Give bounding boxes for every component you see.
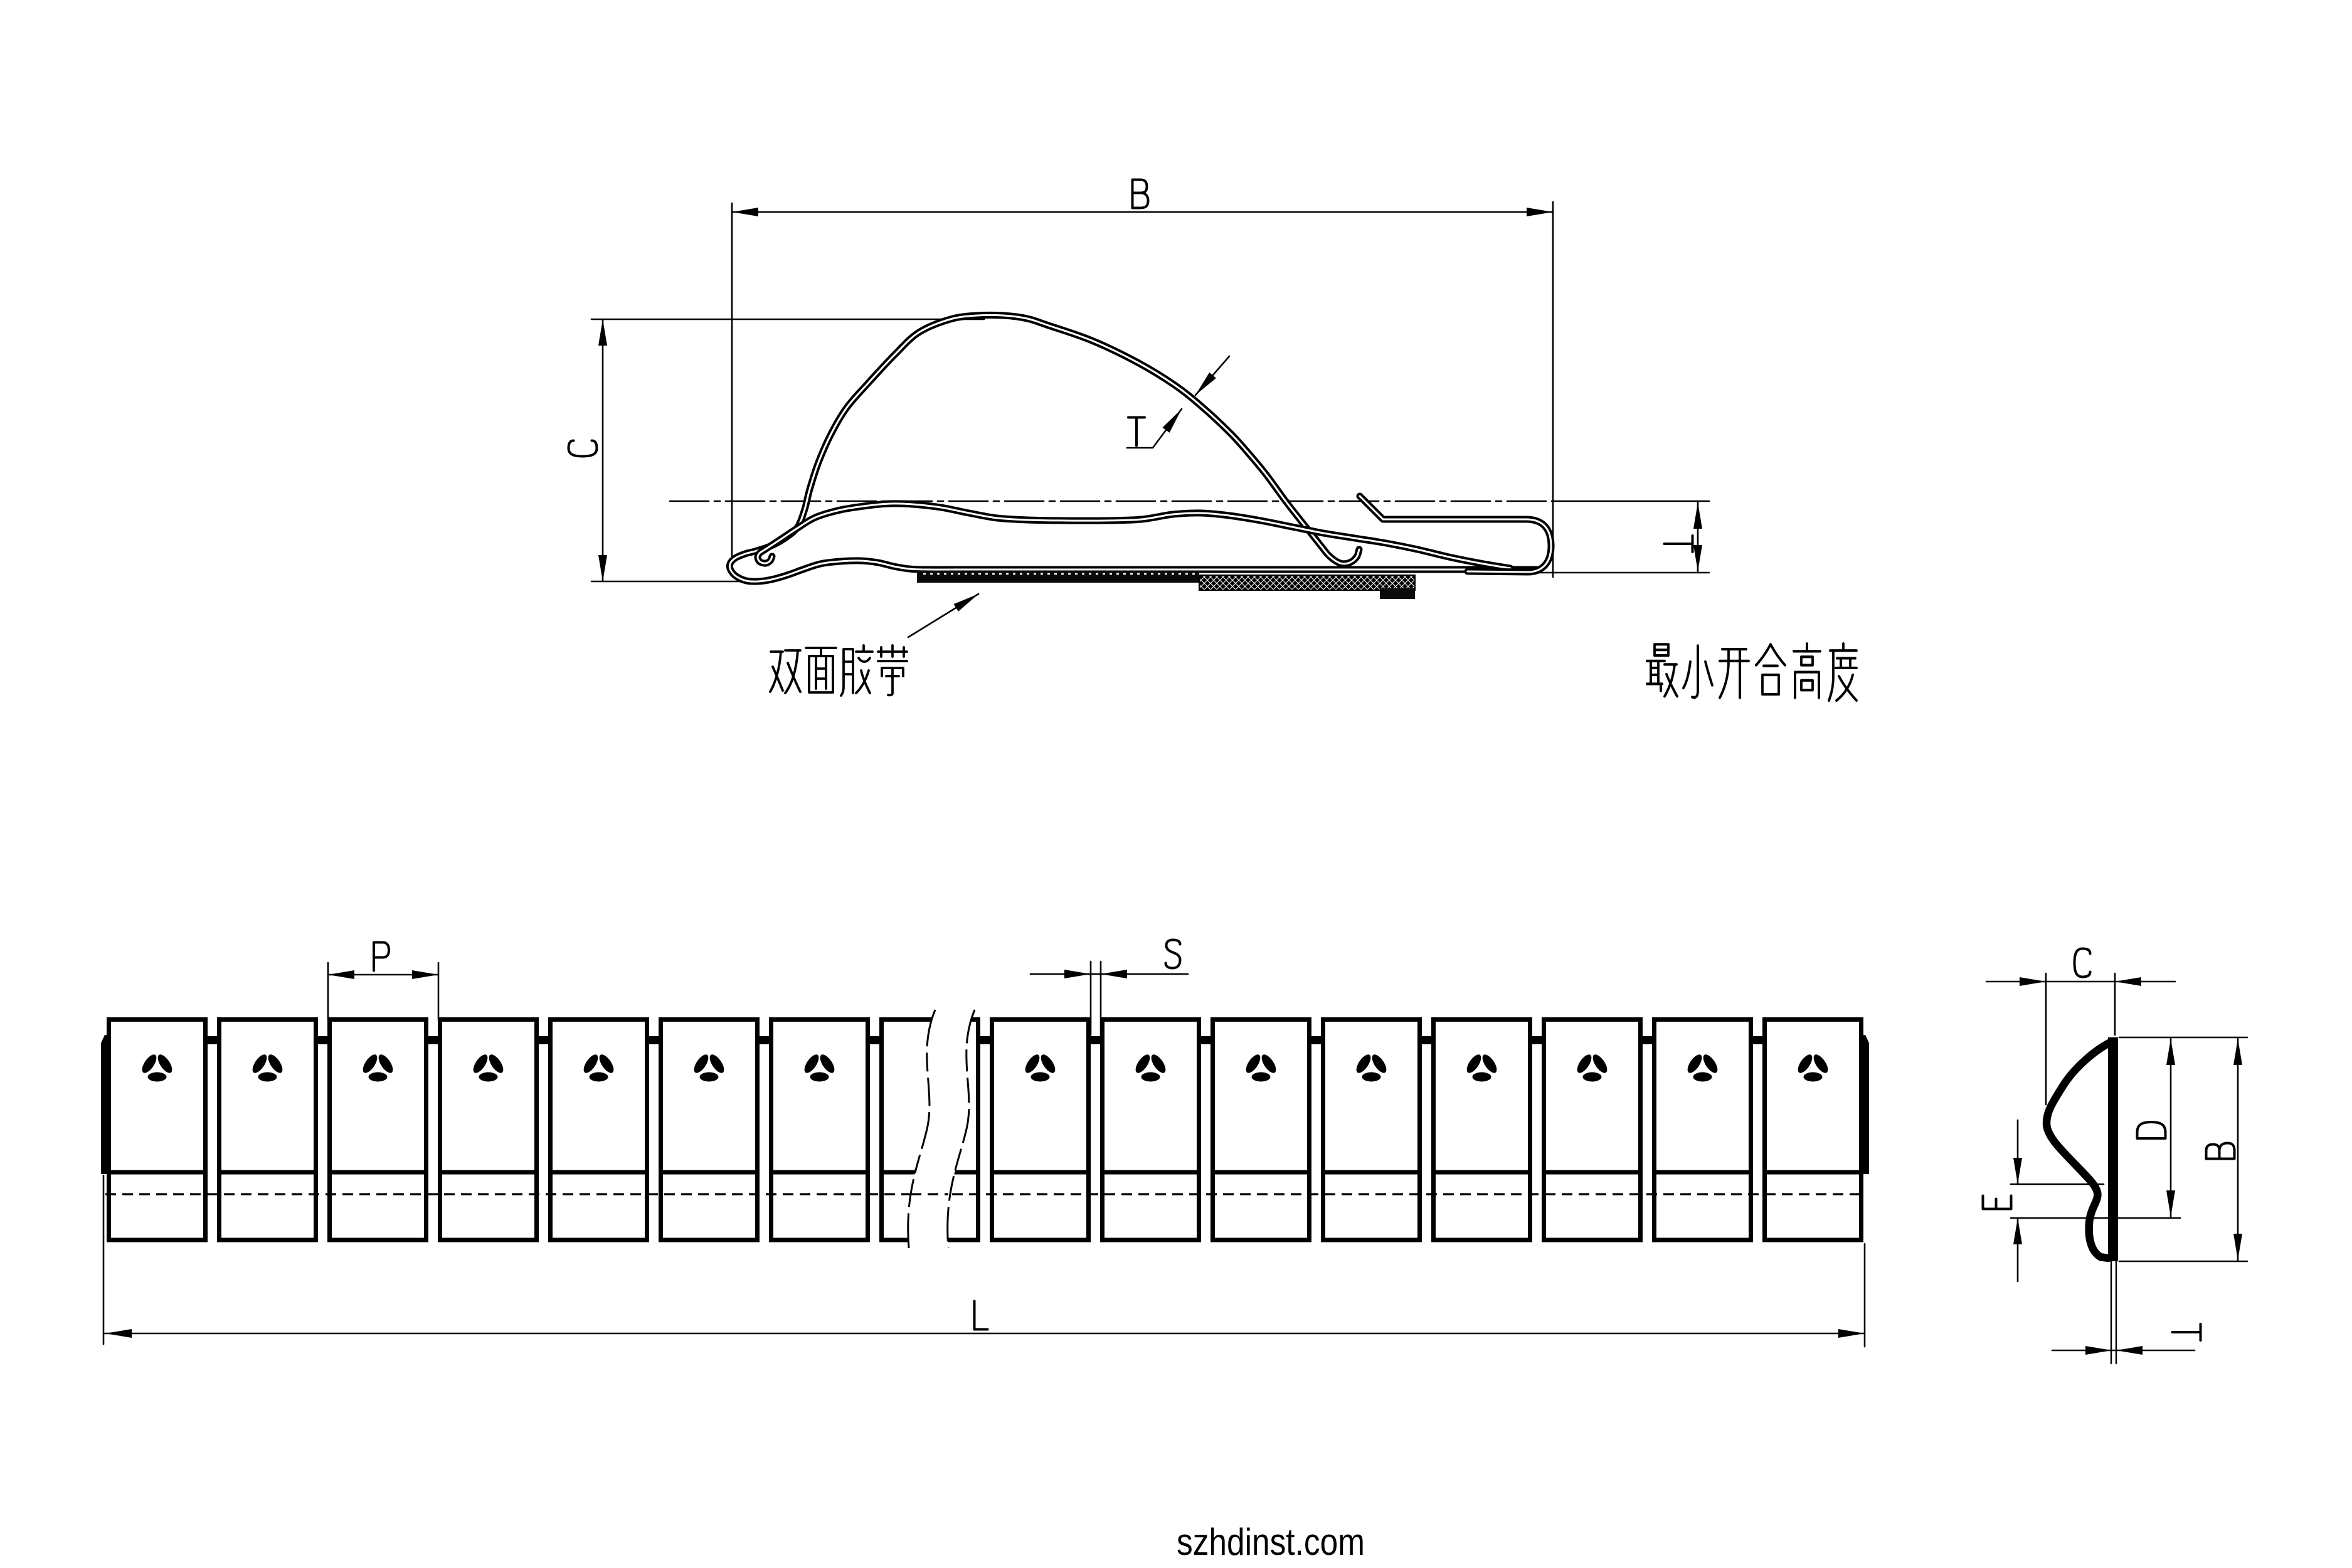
- svg-text:szhdinst.com: szhdinst.com: [1177, 1521, 1365, 1563]
